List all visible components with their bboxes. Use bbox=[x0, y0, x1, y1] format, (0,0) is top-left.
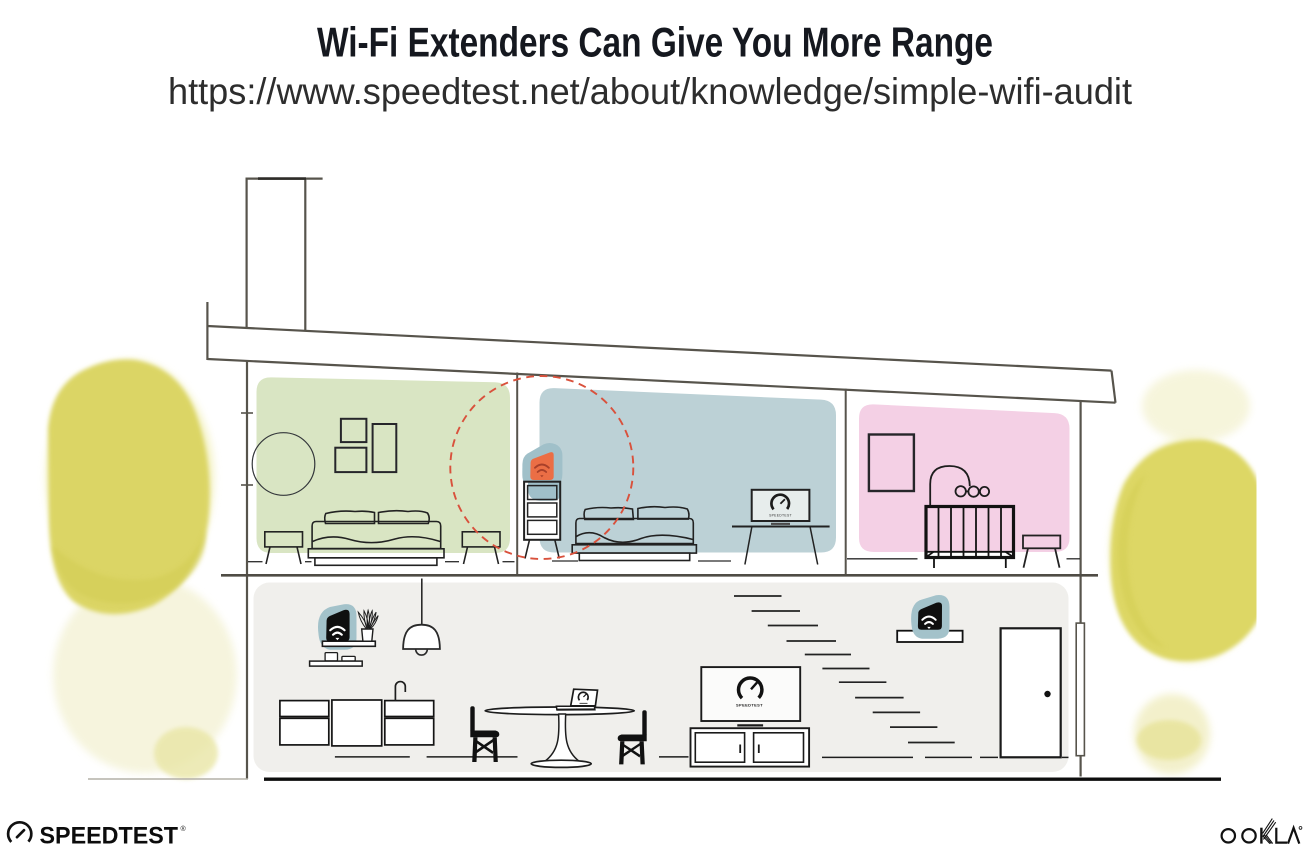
svg-text:SPEEDTEST: SPEEDTEST bbox=[736, 703, 763, 708]
svg-text:SPEEDTEST: SPEEDTEST bbox=[769, 513, 792, 517]
svg-text:®: ® bbox=[181, 825, 187, 833]
svg-text:https://www.speedtest.net/abou: https://www.speedtest.net/about/knowledg… bbox=[168, 71, 1133, 112]
svg-text:SPEEDTEST: SPEEDTEST bbox=[40, 822, 179, 849]
svg-text:Wi-Fi Extenders Can Give You M: Wi-Fi Extenders Can Give You More Range bbox=[317, 19, 993, 66]
